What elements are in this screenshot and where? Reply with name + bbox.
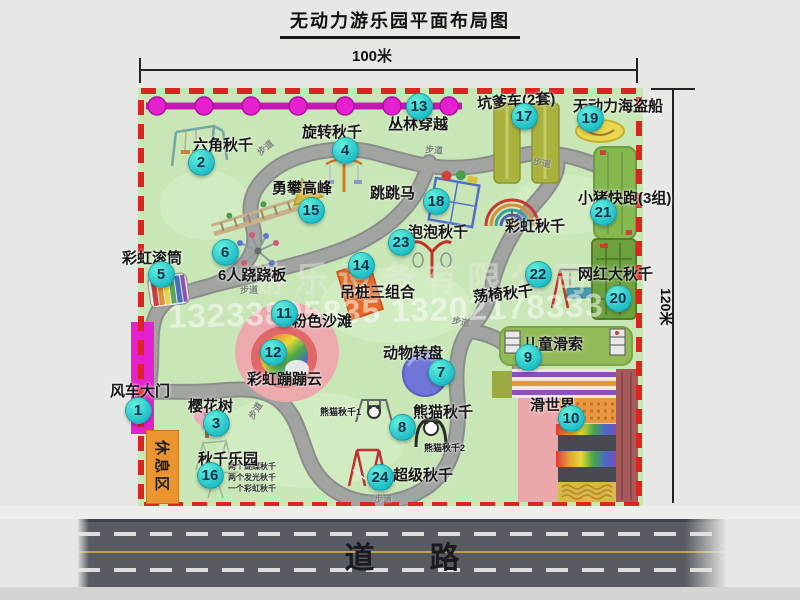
below-road-strip xyxy=(0,587,800,600)
road: 道路 xyxy=(78,519,726,587)
attraction-16-badge: 16 xyxy=(197,462,224,489)
swing-note-3: 一个彩虹秋千 xyxy=(228,483,276,494)
dimension-top-label: 100米 xyxy=(352,45,392,66)
attraction-7-badge: 7 xyxy=(428,359,455,386)
attraction-20-label: 网红大秋千 xyxy=(578,263,653,284)
attraction-6-badge: 6 xyxy=(212,239,239,266)
attraction-5-badge: 5 xyxy=(148,261,175,288)
attraction-22-badge: 22 xyxy=(525,261,552,288)
attraction-4-badge: 4 xyxy=(332,137,359,164)
attraction-17-badge: 17 xyxy=(511,103,538,130)
attraction-23-badge: 23 xyxy=(388,229,415,256)
attraction-15-label: 勇攀高峰 xyxy=(272,177,332,198)
attraction-13-badge: 13 xyxy=(406,93,433,120)
attraction-9-badge: 9 xyxy=(515,344,542,371)
panda-swing-2-label: 熊猫秋千2 xyxy=(424,441,465,454)
attraction-18-label: 跳跳马 xyxy=(370,182,415,203)
trail-label-2: 步道 xyxy=(425,142,444,156)
attraction-24-label: 超级秋千 xyxy=(393,464,453,485)
attraction-8-label: 熊猫秋千 xyxy=(413,401,473,422)
attraction-1-badge: 1 xyxy=(125,397,152,424)
attraction-2-badge: 2 xyxy=(188,149,215,176)
attraction-11-badge: 11 xyxy=(271,300,298,327)
attraction-12-label: 彩虹蹦蹦云 xyxy=(247,368,322,389)
attraction-18-badge: 18 xyxy=(423,188,450,215)
attraction-11-label: 粉色沙滩 xyxy=(292,310,352,331)
rest-area-label: 休息区 xyxy=(152,440,173,494)
attraction-23-label: 泡泡秋千 xyxy=(408,221,468,242)
attraction-24-badge: 24 xyxy=(367,464,394,491)
attraction-14-label: 吊桩三组合 xyxy=(340,281,415,302)
attraction-19-badge: 19 xyxy=(577,105,604,132)
road-fade-left xyxy=(77,519,89,587)
page-title: 无动力游乐园平面布局图 xyxy=(280,7,520,39)
park-plan-screenshot: 无动力游乐园平面布局图 100米 120米 游乐设备有限公司 132338058… xyxy=(0,0,800,600)
attraction-20-badge: 20 xyxy=(605,285,632,312)
attraction-15-badge: 15 xyxy=(298,197,325,224)
swing-note-2: 两个发光秋千 xyxy=(228,472,276,483)
trail-label-7: 步道 xyxy=(374,492,392,505)
attraction-3-badge: 3 xyxy=(203,410,230,437)
rainbow-swing-label: 彩虹秋千 xyxy=(505,215,565,236)
attraction-8-badge: 8 xyxy=(389,414,416,441)
road-label: 道路 xyxy=(78,522,726,587)
road-fade-right xyxy=(685,519,727,587)
gap-strip xyxy=(0,506,800,519)
attraction-12-badge: 12 xyxy=(260,339,287,366)
dimension-right-label: 120米 xyxy=(656,288,676,325)
rest-area-box: 休息区 xyxy=(146,430,179,504)
panda-swing-1-label: 熊猫秋千1 xyxy=(320,405,361,418)
attraction-14-badge: 14 xyxy=(348,252,375,279)
attraction-10-badge: 10 xyxy=(558,405,585,432)
attraction-6-label: 6人跷跷板 xyxy=(218,264,286,285)
attraction-21-badge: 21 xyxy=(590,199,617,226)
